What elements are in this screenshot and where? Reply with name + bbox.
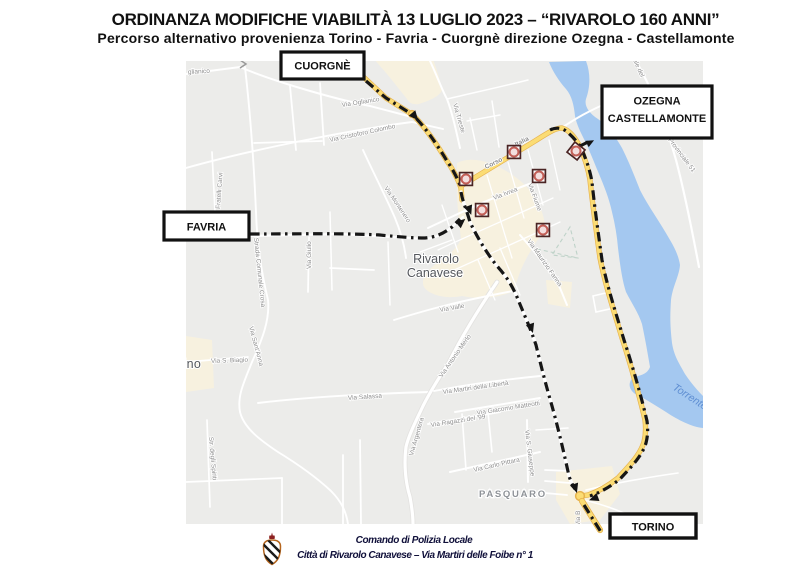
svg-text:Rivarolo: Rivarolo [413, 252, 459, 266]
svg-text:glianico: glianico [188, 68, 211, 76]
svg-text:Canavese: Canavese [407, 266, 463, 280]
svg-text:CASTELLAMONTE: CASTELLAMONTE [608, 113, 706, 125]
svg-text:OZEGNA: OZEGNA [633, 96, 680, 108]
svg-text:FAVRIA: FAVRIA [187, 222, 227, 234]
svg-text:Comando di Polizia Locale: Comando di Polizia Locale [356, 535, 474, 546]
svg-text:Città di Rivarolo Canavese – V: Città di Rivarolo Canavese – Via Martiri… [297, 550, 534, 561]
svg-text:TORINO: TORINO [632, 522, 675, 534]
svg-text:Via S. Biagio: Via S. Biagio [211, 357, 249, 365]
svg-text:CUORGNÈ: CUORGNÈ [294, 60, 350, 73]
svg-text:Via B: Via B [575, 511, 582, 526]
svg-text:PASQUARO: PASQUARO [479, 489, 547, 500]
svg-text:ino: ino [184, 357, 202, 371]
svg-text:Via Giulio: Via Giulio [306, 241, 313, 269]
